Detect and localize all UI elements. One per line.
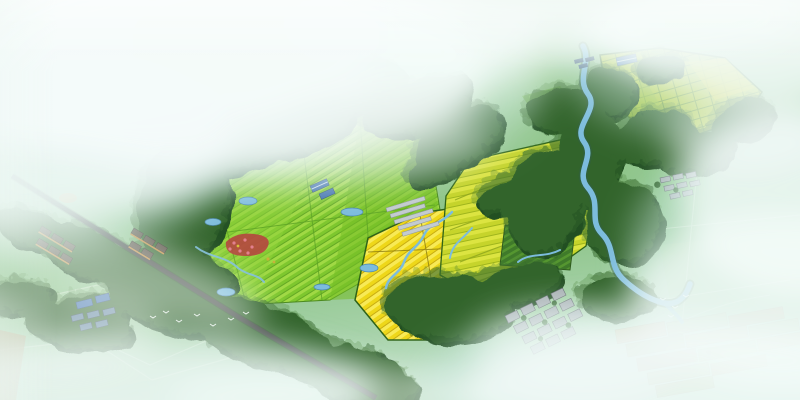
flower	[273, 261, 276, 264]
pond	[341, 208, 363, 216]
pond	[314, 284, 330, 290]
pond	[360, 264, 378, 272]
aerial-rendering	[0, 0, 800, 400]
mist-wisp	[480, 305, 640, 355]
flower	[266, 257, 269, 260]
scene-canvas	[0, 0, 800, 400]
haze-left-overlay	[0, 0, 260, 400]
